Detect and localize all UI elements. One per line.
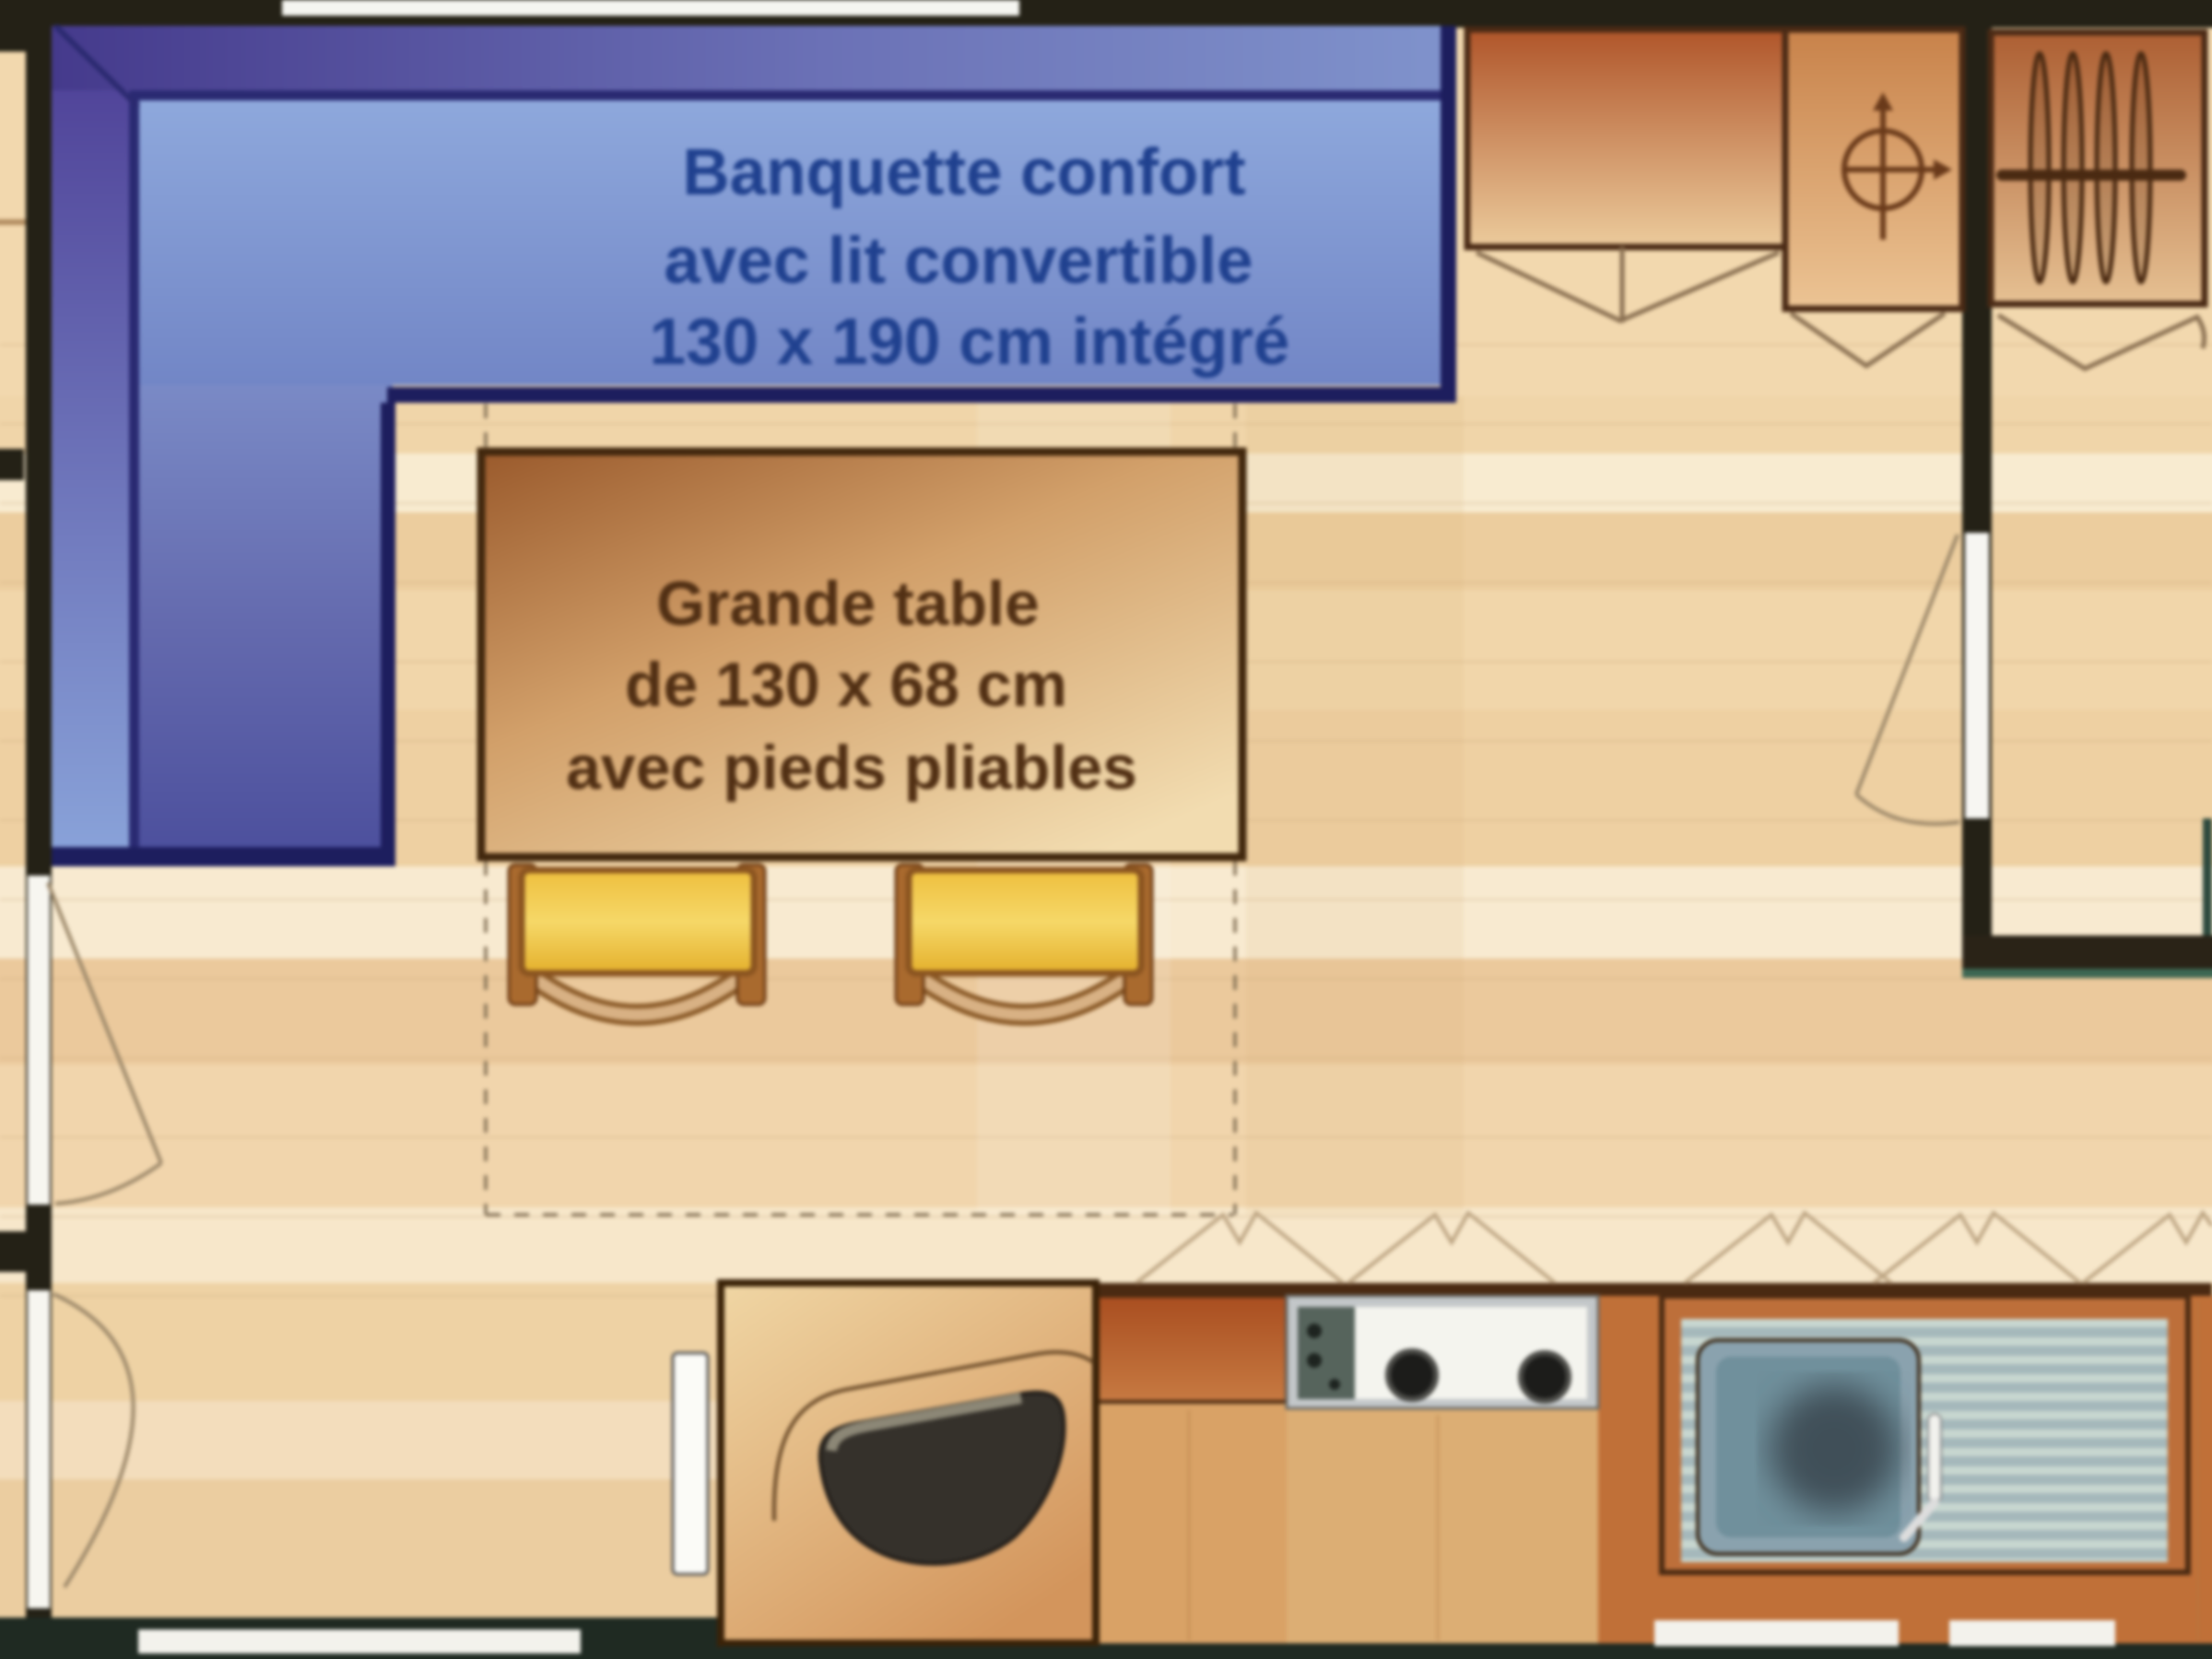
svg-text:Banquette confort: Banquette confort [682,136,1245,209]
svg-text:avec lit convertible: avec lit convertible [664,225,1253,298]
svg-text:de 130 x 68 cm: de 130 x 68 cm [625,650,1067,720]
svg-text:avec pieds pliables: avec pieds pliables [566,733,1137,803]
svg-text:Grande table: Grande table [656,569,1040,639]
svg-text:130 x 190 cm intégré: 130 x 190 cm intégré [650,306,1290,379]
